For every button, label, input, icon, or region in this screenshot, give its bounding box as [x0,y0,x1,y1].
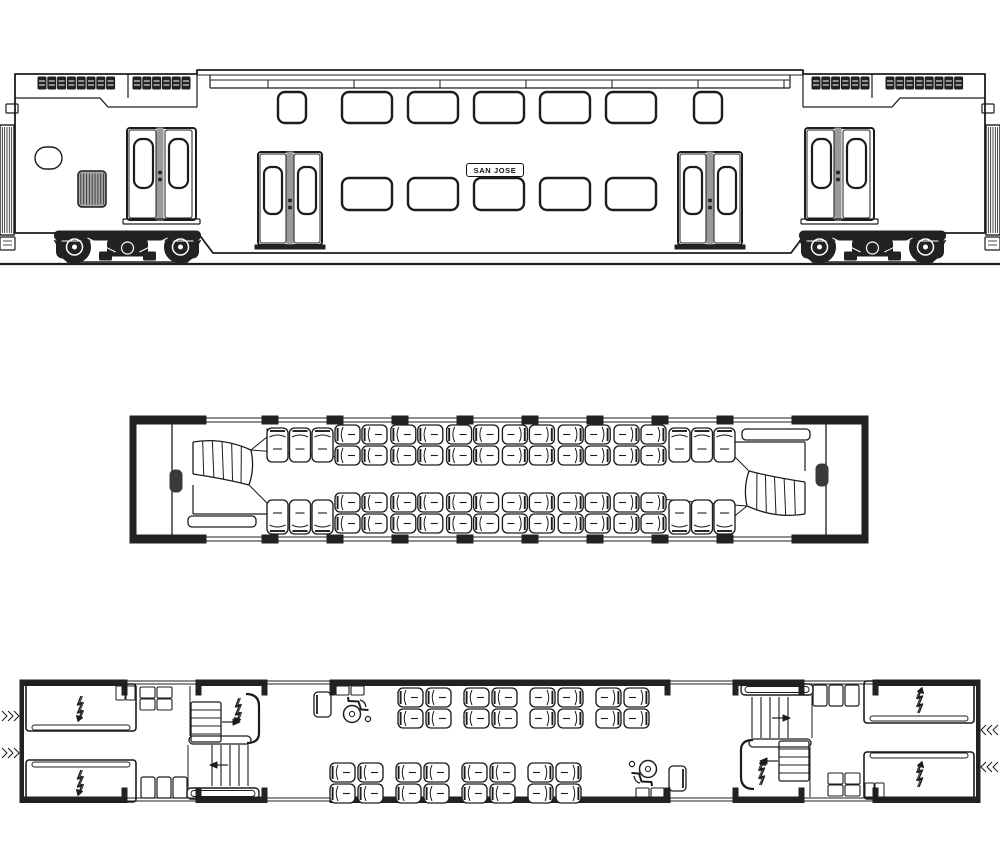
bench-seat [714,500,735,534]
seat [398,709,423,728]
seat [462,784,487,803]
seat [556,784,581,803]
bench-seat [692,428,713,462]
seat [596,709,621,728]
end-diaphragm [986,125,1000,235]
seat [335,493,360,512]
seat [418,446,443,465]
seat [391,493,416,512]
seat [556,763,581,782]
wheelchair-icon [629,761,656,787]
seat [558,514,583,533]
seat [447,446,472,465]
destination-signboard: SAN JOSE [466,163,524,177]
seat [585,514,610,533]
coupler-box [985,237,1000,250]
seat [418,514,443,533]
ribbed-grille [78,171,106,207]
bench-seat [312,428,333,462]
seat [474,446,499,465]
lightning-bolt-icon [917,688,924,714]
seat [624,688,649,707]
side-entry-double-door [255,152,325,249]
seat [558,446,583,465]
bench-seat [669,500,690,534]
seat [335,446,360,465]
seat [492,688,517,707]
stair-arrow-icon [772,715,790,721]
side-entry-double-door [675,152,745,249]
drawing-canvas [0,0,1000,856]
seat [418,493,443,512]
seat [447,425,472,444]
upper-level-floor-plan [130,416,868,543]
seat [426,709,451,728]
seat [362,425,387,444]
seat [585,446,610,465]
seat [462,763,487,782]
seat [424,763,449,782]
seat [426,688,451,707]
seat [596,688,621,707]
seat [502,425,527,444]
seat [396,784,421,803]
accessible-seating-area [629,761,686,798]
seat [528,763,553,782]
seat [398,688,423,707]
seat [558,709,583,728]
bench-seat [267,500,288,534]
seat [335,425,360,444]
lower-level-floor-plan [2,680,998,803]
seat [474,493,499,512]
lightning-bolt-icon [77,696,84,722]
bench-seat [669,428,690,462]
seat [362,493,387,512]
seat [641,514,666,533]
bogie-truck [55,231,201,263]
seat [530,688,555,707]
lightning-bolt-icon [917,762,924,788]
bench-seat [290,428,311,462]
seating-area [335,425,666,533]
lightning-bolt-icon [235,698,242,724]
seat [614,446,639,465]
seat [558,688,583,707]
seat [558,425,583,444]
electrical-locker [864,681,974,723]
accessible-seating-area [314,686,371,723]
seat [447,514,472,533]
lower-staircase [187,686,259,799]
seat [624,709,649,728]
seat [558,493,583,512]
end-equipment-section [2,684,371,802]
lightning-bolt-icon [77,770,84,796]
seat [585,493,610,512]
seat [358,763,383,782]
electrical-locker [26,760,136,802]
seat [358,784,383,803]
seat [529,446,554,465]
seat [447,493,472,512]
end-equipment-section [629,681,998,799]
electrical-locker [26,684,136,731]
end-diaphragm [0,125,14,235]
bench-seat [312,500,333,534]
bench-seat [267,428,288,462]
seat [529,493,554,512]
coupler-box [0,237,15,250]
seat [335,514,360,533]
seat [614,493,639,512]
coupler-squiggle [2,711,19,758]
seat [396,763,421,782]
end-double-door [123,128,200,224]
seat [614,514,639,533]
seat [502,493,527,512]
seat [330,784,355,803]
seat [391,446,416,465]
seat [391,425,416,444]
seat [502,514,527,533]
seating-area [330,688,649,803]
seat [641,493,666,512]
stair-arrow-icon [210,762,228,768]
bench-seat [290,500,311,534]
seat [474,514,499,533]
bench-seat [692,500,713,534]
end-equipment-section-rotated [629,681,998,799]
seat [641,446,666,465]
bogie-truck [800,231,946,263]
coupler-squiggle [981,725,998,772]
seat [530,709,555,728]
seat [391,514,416,533]
seat [529,425,554,444]
rail-car-technical-drawing: SAN JOSE [0,0,1000,856]
seat [585,425,610,444]
vestibule-benches [140,687,187,798]
lower-staircase [741,684,813,797]
longitudinal-bench [267,428,333,534]
seat [490,784,515,803]
seat [641,425,666,444]
seat [418,425,443,444]
vestibule-benches [813,685,860,796]
seat [330,763,355,782]
longitudinal-bench [669,428,735,534]
end-double-door [801,128,878,224]
seat [529,514,554,533]
seat [464,709,489,728]
seat [614,425,639,444]
bench-seat [714,428,735,462]
seat [362,446,387,465]
seat [492,709,517,728]
seat [464,688,489,707]
seat [502,446,527,465]
seat [474,425,499,444]
lightning-bolt-icon [759,760,766,786]
seat [362,514,387,533]
seat [528,784,553,803]
seat [424,784,449,803]
wheelchair-icon [344,697,371,723]
seat [490,763,515,782]
electrical-locker [864,752,974,799]
